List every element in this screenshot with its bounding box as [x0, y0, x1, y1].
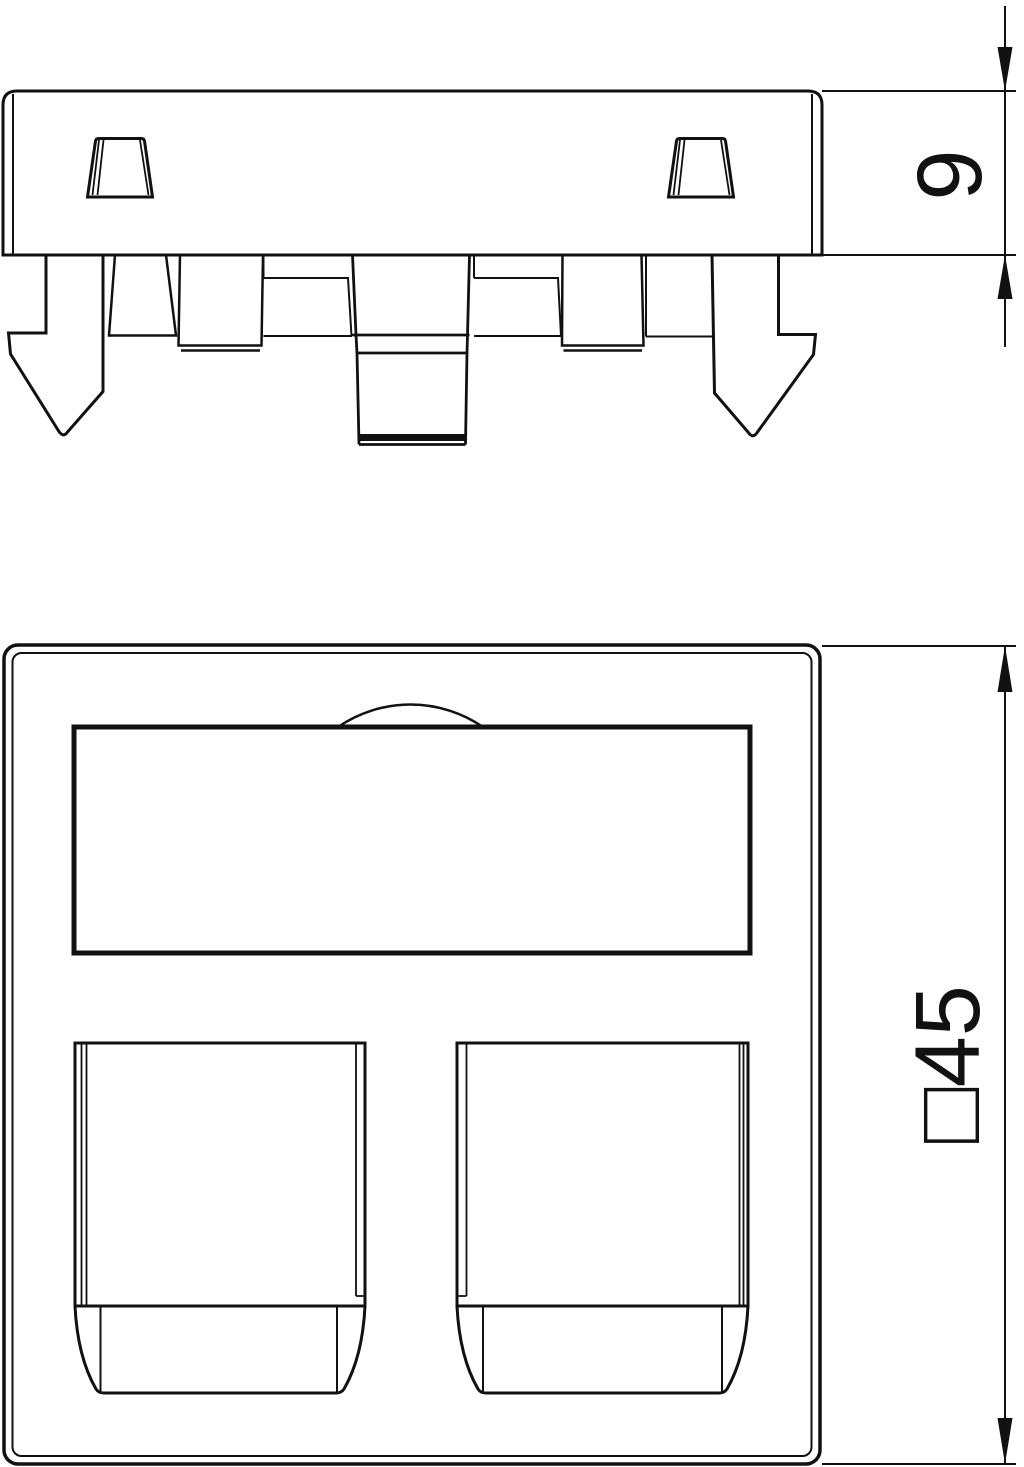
side-view — [3, 91, 822, 445]
finger-recess-arc — [338, 704, 483, 727]
module-body-outline — [3, 91, 822, 255]
arrow-up-icon — [998, 255, 1013, 299]
port-opening — [75, 1043, 365, 1306]
dimension-label-9: 9 — [899, 149, 1001, 200]
port-opening — [457, 1043, 748, 1306]
front-view — [4, 645, 820, 1464]
support-tab-a — [109, 255, 176, 336]
port-side-line-left — [459, 1044, 467, 1296]
support-tab-c — [562, 255, 644, 351]
port-side-lines-right — [740, 1044, 744, 1305]
mounting-feet — [9, 255, 816, 445]
technical-drawing: 9 □45 — [0, 0, 1024, 1467]
label-field — [74, 727, 750, 953]
faceplate-outline — [4, 645, 820, 1464]
port-side-lines-left — [82, 1044, 87, 1305]
shutter-flap-edges — [483, 1307, 722, 1392]
clip-facet-lines — [93, 140, 149, 195]
arrow-up-icon — [998, 646, 1013, 692]
arrow-down-icon — [998, 1418, 1013, 1464]
step-recess-right — [474, 255, 562, 336]
shutter-flap — [457, 1306, 748, 1393]
dimension-label-45: □45 — [897, 985, 999, 1143]
shutter-flap-edges — [101, 1307, 338, 1392]
faceplate-inner-edge — [13, 653, 812, 1456]
latch-clip-right — [669, 139, 734, 198]
center-latch-foot — [353, 255, 470, 445]
port-left — [75, 1043, 365, 1393]
dimension-45: □45 — [822, 646, 1016, 1464]
drawing-canvas: 9 □45 — [0, 0, 1024, 1467]
dimension-9: 9 — [822, 6, 1016, 347]
port-side-line-right — [356, 1044, 364, 1296]
latch-clip-left — [88, 139, 153, 198]
port-right — [457, 1043, 748, 1393]
barb-foot-left — [9, 255, 104, 435]
gap-edge-right — [646, 255, 712, 337]
support-tab-b — [179, 255, 264, 351]
clip-facet-lines — [674, 140, 730, 195]
step-recess-left — [264, 255, 353, 336]
shutter-flap — [75, 1306, 365, 1393]
arrow-down-icon — [998, 47, 1013, 91]
barb-foot-right — [712, 255, 816, 436]
